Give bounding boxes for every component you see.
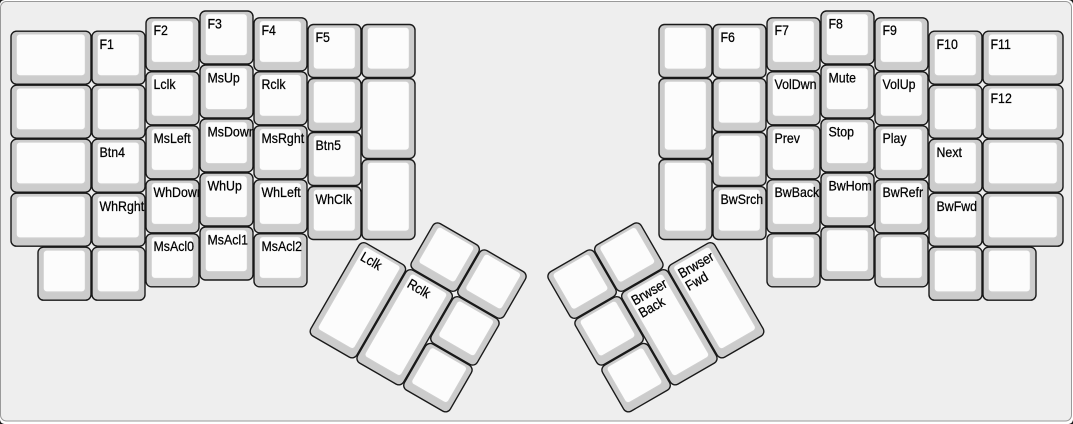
svg-text:WhClk: WhClk xyxy=(316,191,353,207)
svg-text:F12: F12 xyxy=(991,90,1012,106)
svg-text:MsRght: MsRght xyxy=(262,130,305,146)
svg-text:MsAcl0: MsAcl0 xyxy=(154,238,195,254)
svg-text:BwSrch: BwSrch xyxy=(721,191,764,207)
svg-text:Lclk: Lclk xyxy=(154,76,176,92)
svg-text:F3: F3 xyxy=(208,16,222,32)
svg-text:Mute: Mute xyxy=(829,70,857,86)
svg-text:F8: F8 xyxy=(829,16,843,32)
svg-text:Next: Next xyxy=(937,144,963,160)
svg-text:F1: F1 xyxy=(100,36,114,52)
svg-text:BwFwd: BwFwd xyxy=(937,198,978,214)
svg-text:VolUp: VolUp xyxy=(883,76,916,92)
svg-text:VolDwn: VolDwn xyxy=(775,76,817,92)
svg-text:F7: F7 xyxy=(775,22,789,38)
svg-text:MsDown: MsDown xyxy=(208,124,256,140)
svg-text:WhLeft: WhLeft xyxy=(262,184,302,200)
svg-text:WhRght: WhRght xyxy=(100,198,145,214)
svg-text:F10: F10 xyxy=(937,36,958,52)
svg-text:BwRefr: BwRefr xyxy=(883,184,924,200)
svg-text:MsAcl2: MsAcl2 xyxy=(262,238,303,254)
svg-text:F9: F9 xyxy=(883,22,897,38)
svg-text:Prev: Prev xyxy=(775,130,801,146)
svg-text:MsUp: MsUp xyxy=(208,70,240,86)
svg-text:Play: Play xyxy=(883,130,907,146)
svg-text:F11: F11 xyxy=(991,36,1011,52)
svg-text:WhUp: WhUp xyxy=(208,178,242,194)
svg-text:F5: F5 xyxy=(316,29,330,45)
svg-text:F2: F2 xyxy=(154,22,168,38)
svg-text:WhDown: WhDown xyxy=(154,184,204,200)
svg-text:Stop: Stop xyxy=(829,124,854,140)
svg-text:MsAcl1: MsAcl1 xyxy=(208,232,249,248)
svg-text:F4: F4 xyxy=(262,22,276,38)
svg-text:BwHom: BwHom xyxy=(829,178,872,194)
svg-text:MsLeft: MsLeft xyxy=(154,130,191,146)
svg-text:Rclk: Rclk xyxy=(262,76,286,92)
svg-text:Btn5: Btn5 xyxy=(316,137,341,153)
svg-text:Btn4: Btn4 xyxy=(100,144,125,160)
svg-text:F6: F6 xyxy=(721,29,735,45)
svg-text:BwBack: BwBack xyxy=(775,184,820,200)
